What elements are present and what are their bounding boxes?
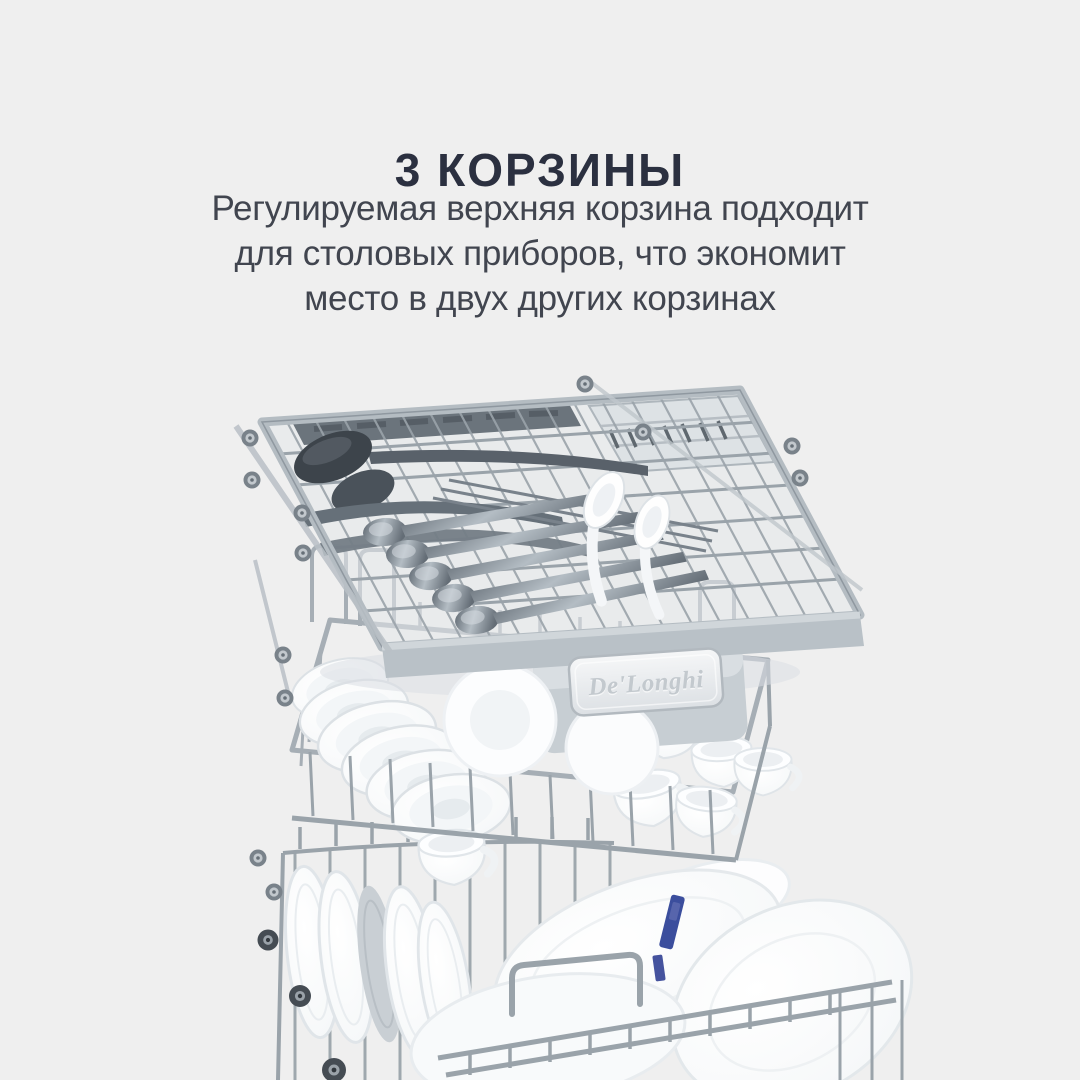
dishwasher-baskets-illustration: De'Longhi De'Longhi — [0, 0, 1080, 1080]
product-photo: De'Longhi De'Longhi — [0, 0, 1080, 1080]
cutlery-tray — [236, 376, 864, 707]
delonghi-badge: De'Longhi De'Longhi — [568, 648, 724, 716]
infographic-card: 3 КОРЗИНЫ Регулируемая верхняя корзина п… — [0, 0, 1080, 1080]
bottom-basket — [250, 817, 948, 1080]
